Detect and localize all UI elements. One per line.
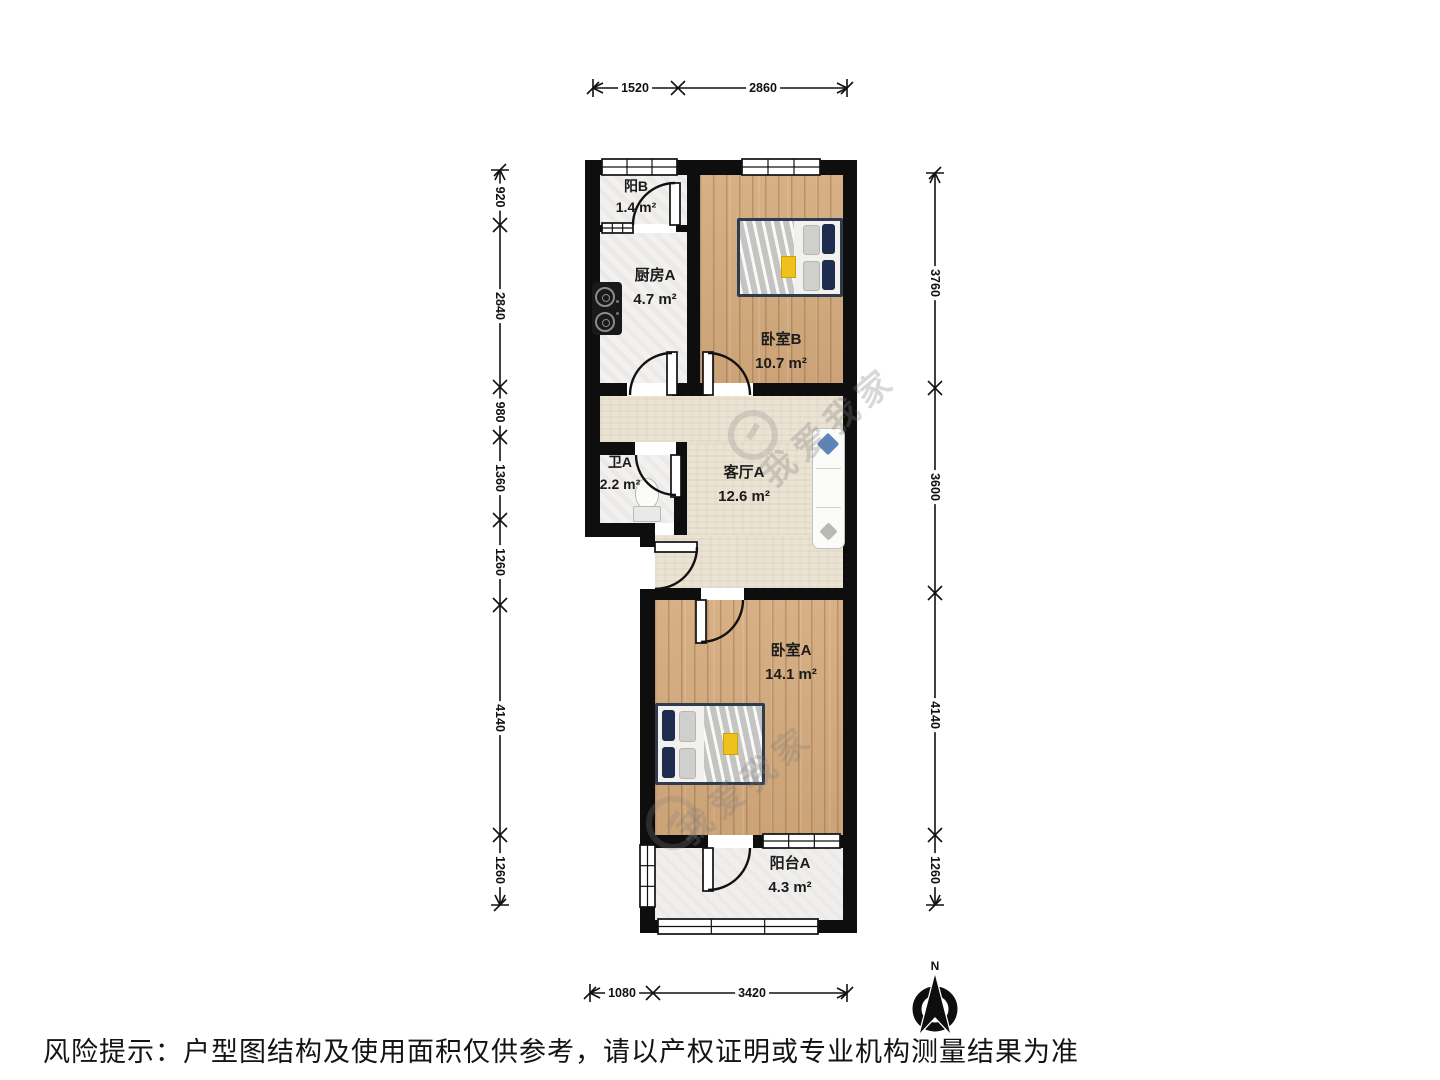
room-area: 14.1 m² xyxy=(765,663,817,687)
room-area: 4.3 m² xyxy=(768,876,811,900)
dim-bottom-1: 1080 xyxy=(605,986,639,1000)
dim-left-5: 1260 xyxy=(493,545,507,579)
wall-left-lower xyxy=(640,589,655,933)
wall-top xyxy=(585,160,857,175)
dim-top-2: 2860 xyxy=(746,81,780,95)
dim-top-1: 1520 xyxy=(618,81,652,95)
wall-right xyxy=(843,160,857,933)
room-name: 阳B xyxy=(616,176,656,197)
bed-b-book xyxy=(781,256,796,278)
room-label-bedroom-b: 卧室B 10.7 m² xyxy=(755,328,807,376)
dim-right-2: 3600 xyxy=(928,470,942,504)
room-name: 卧室A xyxy=(765,639,817,663)
wall-bath-right xyxy=(674,442,687,535)
dim-bottom-2: 3420 xyxy=(735,986,769,1000)
room-name: 卧室B xyxy=(755,328,807,352)
wall-kitchen-bedroomB xyxy=(687,160,700,396)
sofa xyxy=(812,428,845,549)
dim-left-4: 1360 xyxy=(493,461,507,495)
dim-left-1: 920 xyxy=(493,184,507,211)
bed-bedroom-b xyxy=(737,218,843,297)
sofa-seam-1 xyxy=(816,468,841,469)
room-label-bath-a: 卫A 2.2 m² xyxy=(600,451,640,495)
dim-right-1: 3760 xyxy=(928,266,942,300)
dim-left-2: 2840 xyxy=(493,289,507,323)
stove-knob-2 xyxy=(616,312,619,315)
toilet-tank xyxy=(633,506,661,522)
room-label-kitchen-a: 厨房A 4.7 m² xyxy=(633,264,676,312)
room-name: 客厅A xyxy=(718,461,770,485)
floor-plan: 阳B 1.4 m² 厨房A 4.7 m² 卧室B 10.7 m² 卫A 2.2 … xyxy=(0,0,1440,1080)
bed-a-book xyxy=(723,733,738,755)
dim-left-3: 980 xyxy=(493,399,507,426)
doorway-balconyA xyxy=(708,835,753,848)
balcony-a-floor xyxy=(655,848,843,920)
stove-knob-1 xyxy=(616,300,619,303)
bed-bedroom-a xyxy=(655,703,765,785)
dim-left-7: 1260 xyxy=(493,853,507,887)
doorway-kitchen xyxy=(627,383,672,396)
doorway-bedroomB xyxy=(708,383,753,396)
room-label-bedroom-a: 卧室A 14.1 m² xyxy=(765,639,817,687)
doorway-balconyB xyxy=(633,224,676,233)
stove-burner-2 xyxy=(595,312,615,332)
living-a-floor-top xyxy=(600,396,843,442)
wall-balconyA-bottom xyxy=(640,920,857,933)
bed-a-pillow-grey-2 xyxy=(679,748,696,779)
risk-disclaimer: 风险提示：户型图结构及使用面积仅供参考，请以产权证明或专业机构测量结果为准 xyxy=(43,1030,1079,1069)
doorway-bath xyxy=(635,442,676,455)
room-area: 4.7 m² xyxy=(633,288,676,312)
wall-living-bedroomA xyxy=(640,588,857,600)
room-name: 卫A xyxy=(600,451,640,473)
wall-left xyxy=(585,160,600,535)
dim-right-3: 4140 xyxy=(928,698,942,732)
bed-b-pillow-grey-1 xyxy=(803,225,820,255)
wall-step xyxy=(640,523,655,547)
dim-left-6: 4140 xyxy=(493,701,507,735)
room-area: 10.7 m² xyxy=(755,352,807,376)
room-name: 厨房A xyxy=(633,264,676,288)
room-label-balcony-a: 阳台A 4.3 m² xyxy=(768,852,811,900)
sofa-seam-2 xyxy=(816,507,841,508)
sofa-pillow-blue xyxy=(817,433,840,456)
room-label-balcony-b: 阳B 1.4 m² xyxy=(616,176,656,218)
room-area: 12.6 m² xyxy=(718,485,770,509)
doorway-entrance xyxy=(640,547,655,589)
bed-b-pillow-navy-1 xyxy=(822,224,835,254)
stove xyxy=(592,282,622,335)
bed-a-pillow-navy-2 xyxy=(662,747,675,778)
bed-b-pillow-navy-2 xyxy=(822,260,835,290)
sofa-pillow-grey xyxy=(819,522,837,540)
room-name: 阳台A xyxy=(768,852,811,876)
stove-burner-1 xyxy=(595,287,615,307)
dim-right-4: 1260 xyxy=(928,853,942,887)
bed-b-pillow-grey-2 xyxy=(803,261,820,291)
compass-north-label: N xyxy=(908,960,962,972)
bed-a-pillow-grey-1 xyxy=(679,711,696,742)
room-area: 2.2 m² xyxy=(600,473,640,495)
doorway-bedroomA xyxy=(701,588,744,600)
bed-a-pillow-navy-1 xyxy=(662,710,675,741)
room-area: 1.4 m² xyxy=(616,197,656,218)
room-label-living-a: 客厅A 12.6 m² xyxy=(718,461,770,509)
